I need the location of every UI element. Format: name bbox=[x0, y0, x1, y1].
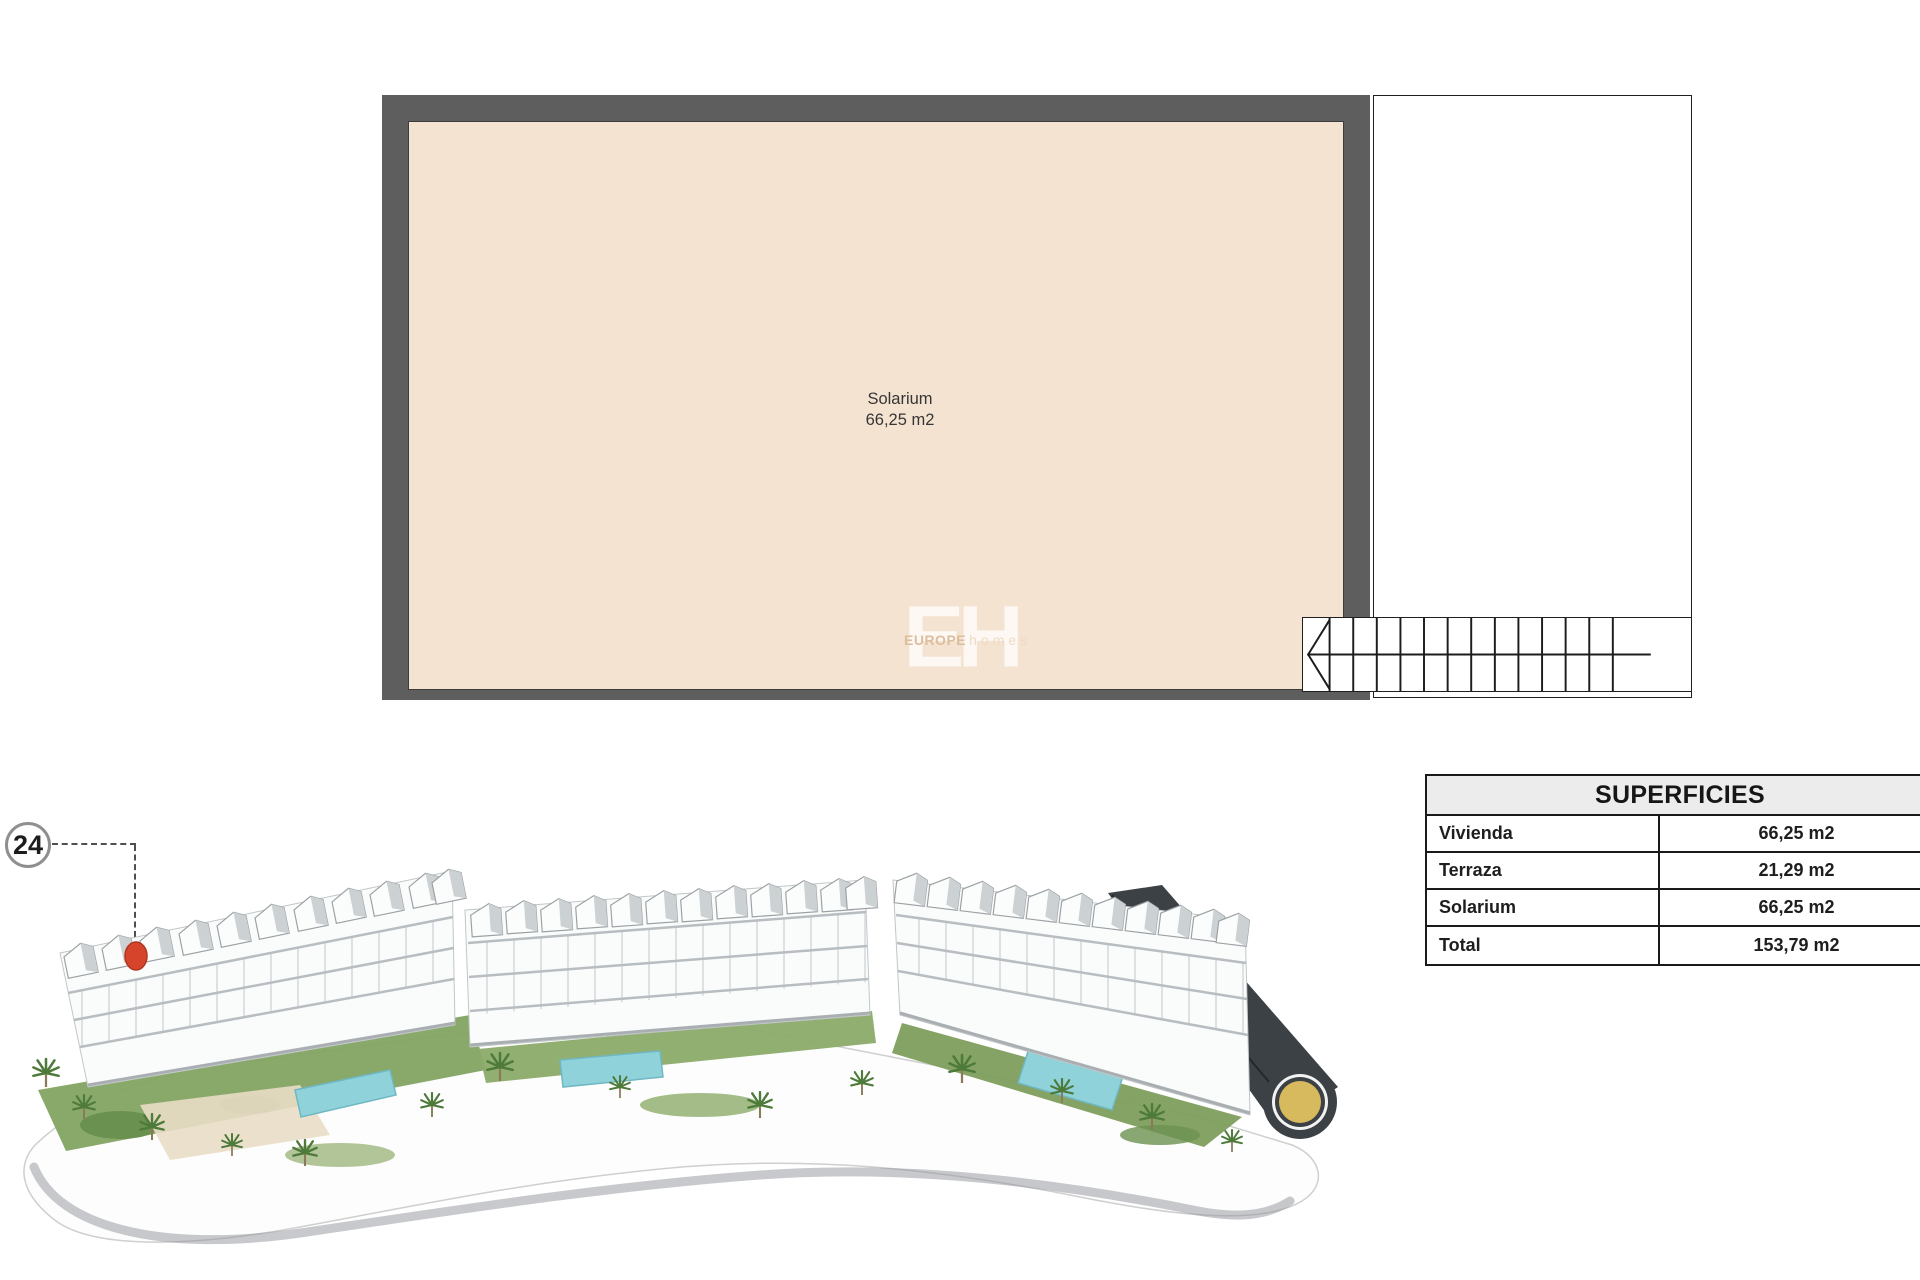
row-value: 66,25 m2 bbox=[1660, 816, 1920, 851]
adjacent-roof-outline bbox=[1373, 95, 1692, 698]
table-title: SUPERFICIES bbox=[1427, 776, 1920, 816]
staircase bbox=[1302, 617, 1692, 692]
leader-line-horizontal bbox=[52, 843, 136, 845]
brochure-page: { "floor_plan": { "room_label": "Solariu… bbox=[0, 0, 1920, 1280]
row-label: Vivienda bbox=[1427, 816, 1660, 851]
table-row: Total 153,79 m2 bbox=[1427, 927, 1920, 964]
row-value: 153,79 m2 bbox=[1660, 927, 1920, 964]
room-label: Solarium 66,25 m2 bbox=[790, 389, 1010, 431]
room-area: 66,25 m2 bbox=[790, 410, 1010, 431]
table-row: Solarium 66,25 m2 bbox=[1427, 890, 1920, 927]
roundabout-center bbox=[1279, 1081, 1321, 1123]
selected-unit-marker bbox=[125, 942, 147, 970]
superficies-table: SUPERFICIES Vivienda 66,25 m2 Terraza 21… bbox=[1425, 774, 1920, 966]
room-name: Solarium bbox=[790, 389, 1010, 410]
table-row: Vivienda 66,25 m2 bbox=[1427, 816, 1920, 853]
table-row: Terraza 21,29 m2 bbox=[1427, 853, 1920, 890]
staircase-drawing bbox=[1303, 618, 1691, 691]
row-label: Solarium bbox=[1427, 890, 1660, 925]
row-label: Terraza bbox=[1427, 853, 1660, 888]
row-value: 21,29 m2 bbox=[1660, 853, 1920, 888]
development-aerial-render bbox=[0, 855, 1400, 1275]
row-label: Total bbox=[1427, 927, 1660, 964]
row-value: 66,25 m2 bbox=[1660, 890, 1920, 925]
